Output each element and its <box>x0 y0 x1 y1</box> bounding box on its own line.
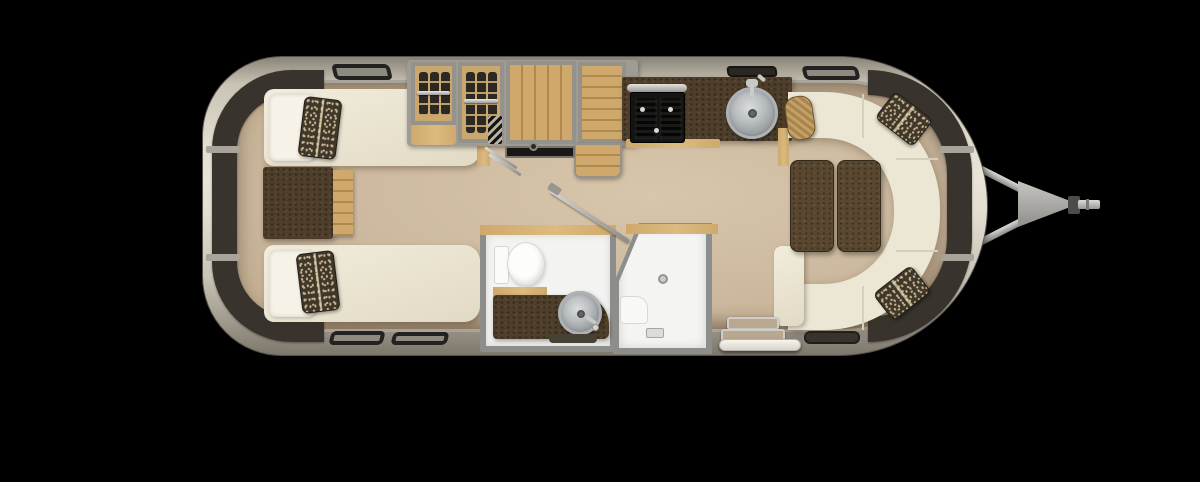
cushion-seam <box>862 286 864 330</box>
hitch-coupler <box>1078 200 1100 209</box>
burner-grate-icon <box>660 97 682 140</box>
accent-pillow <box>297 96 342 160</box>
front-bottom-window <box>804 331 860 344</box>
rear-window-mullion <box>206 254 240 261</box>
tv-rail <box>505 146 575 158</box>
burner-knob-icon <box>640 107 645 112</box>
tv-mount-icon <box>529 142 538 151</box>
storage-cabinet <box>506 61 576 144</box>
cushion-seam <box>896 158 938 160</box>
stove-rail-icon <box>627 84 687 92</box>
hanging-closet <box>411 62 456 125</box>
sofa-arm <box>774 246 804 326</box>
exterior-step <box>719 339 801 351</box>
closet-rod-icon <box>464 99 498 103</box>
roof-vent-icon <box>331 64 393 80</box>
fridge-cabinet <box>574 143 622 178</box>
bathroom-shelf <box>480 225 616 235</box>
sink-drain-icon <box>748 109 757 118</box>
shower-top-shelf <box>626 224 718 234</box>
burner-knob-icon <box>654 128 659 133</box>
cushion-seam <box>896 250 938 252</box>
faucet-icon <box>750 85 754 97</box>
faucet-icon <box>592 324 599 331</box>
range-vent-icon <box>726 66 778 77</box>
storage-cabinet <box>578 62 626 143</box>
lounge-table-left <box>790 160 834 252</box>
toilet <box>507 242 545 286</box>
floorplan-canvas <box>0 0 1200 482</box>
shower-head-icon <box>658 274 668 284</box>
roof-vent-icon <box>390 332 449 345</box>
cushion-seam <box>862 94 864 138</box>
cabinet-front <box>411 125 456 145</box>
hitch-joint <box>1086 199 1089 210</box>
cooktop <box>630 92 685 143</box>
rear-window-mullion <box>206 146 240 153</box>
sink-drain-icon <box>577 310 585 318</box>
nightstand-wood-edge <box>333 170 353 236</box>
front-window-mullion <box>940 146 974 153</box>
lounge-table-right <box>837 160 881 252</box>
accent-pillow <box>295 250 340 314</box>
bath-mat <box>549 334 597 343</box>
roof-vent-icon <box>801 66 860 80</box>
shower-bench <box>620 296 648 324</box>
nightstand <box>263 167 333 239</box>
roof-vent-icon <box>328 331 385 345</box>
burner-knob-icon <box>668 107 673 112</box>
closet-rod-icon <box>417 91 450 95</box>
burner-grate-icon <box>635 97 657 140</box>
front-window-mullion <box>940 254 974 261</box>
shower-drain-icon <box>646 328 664 338</box>
ladder-rack-icon <box>488 116 502 144</box>
